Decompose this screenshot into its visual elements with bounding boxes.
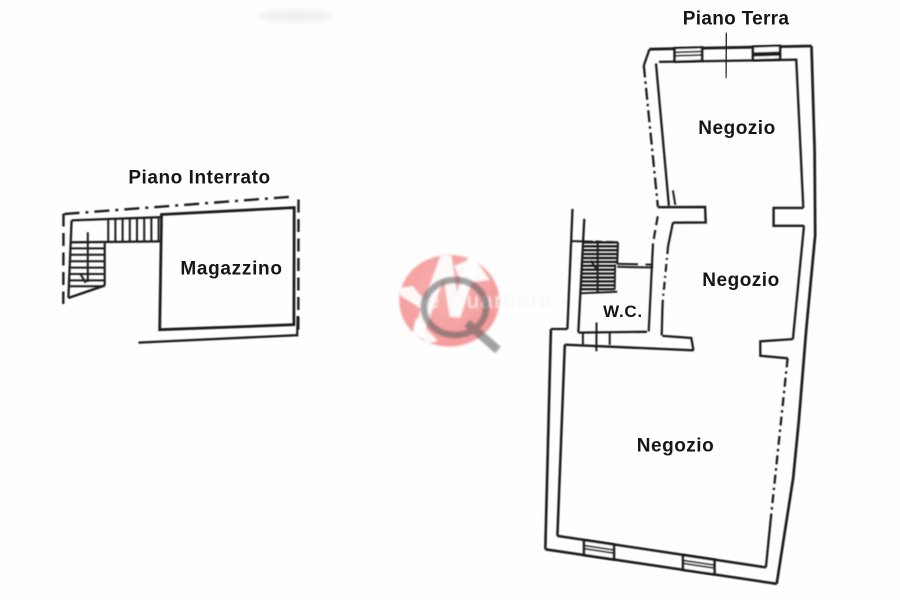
svg-text:Negozio: Negozio: [637, 436, 714, 457]
svg-text:Negozio: Negozio: [702, 270, 779, 291]
svg-text:Magazzino: Magazzino: [180, 259, 282, 280]
svg-text:Piano Interrato: Piano Interrato: [128, 168, 270, 189]
svg-text:Piano Terra: Piano Terra: [683, 8, 790, 29]
svg-text:W.C.: W.C.: [603, 302, 643, 321]
svg-text:Negozio: Negozio: [698, 118, 775, 139]
